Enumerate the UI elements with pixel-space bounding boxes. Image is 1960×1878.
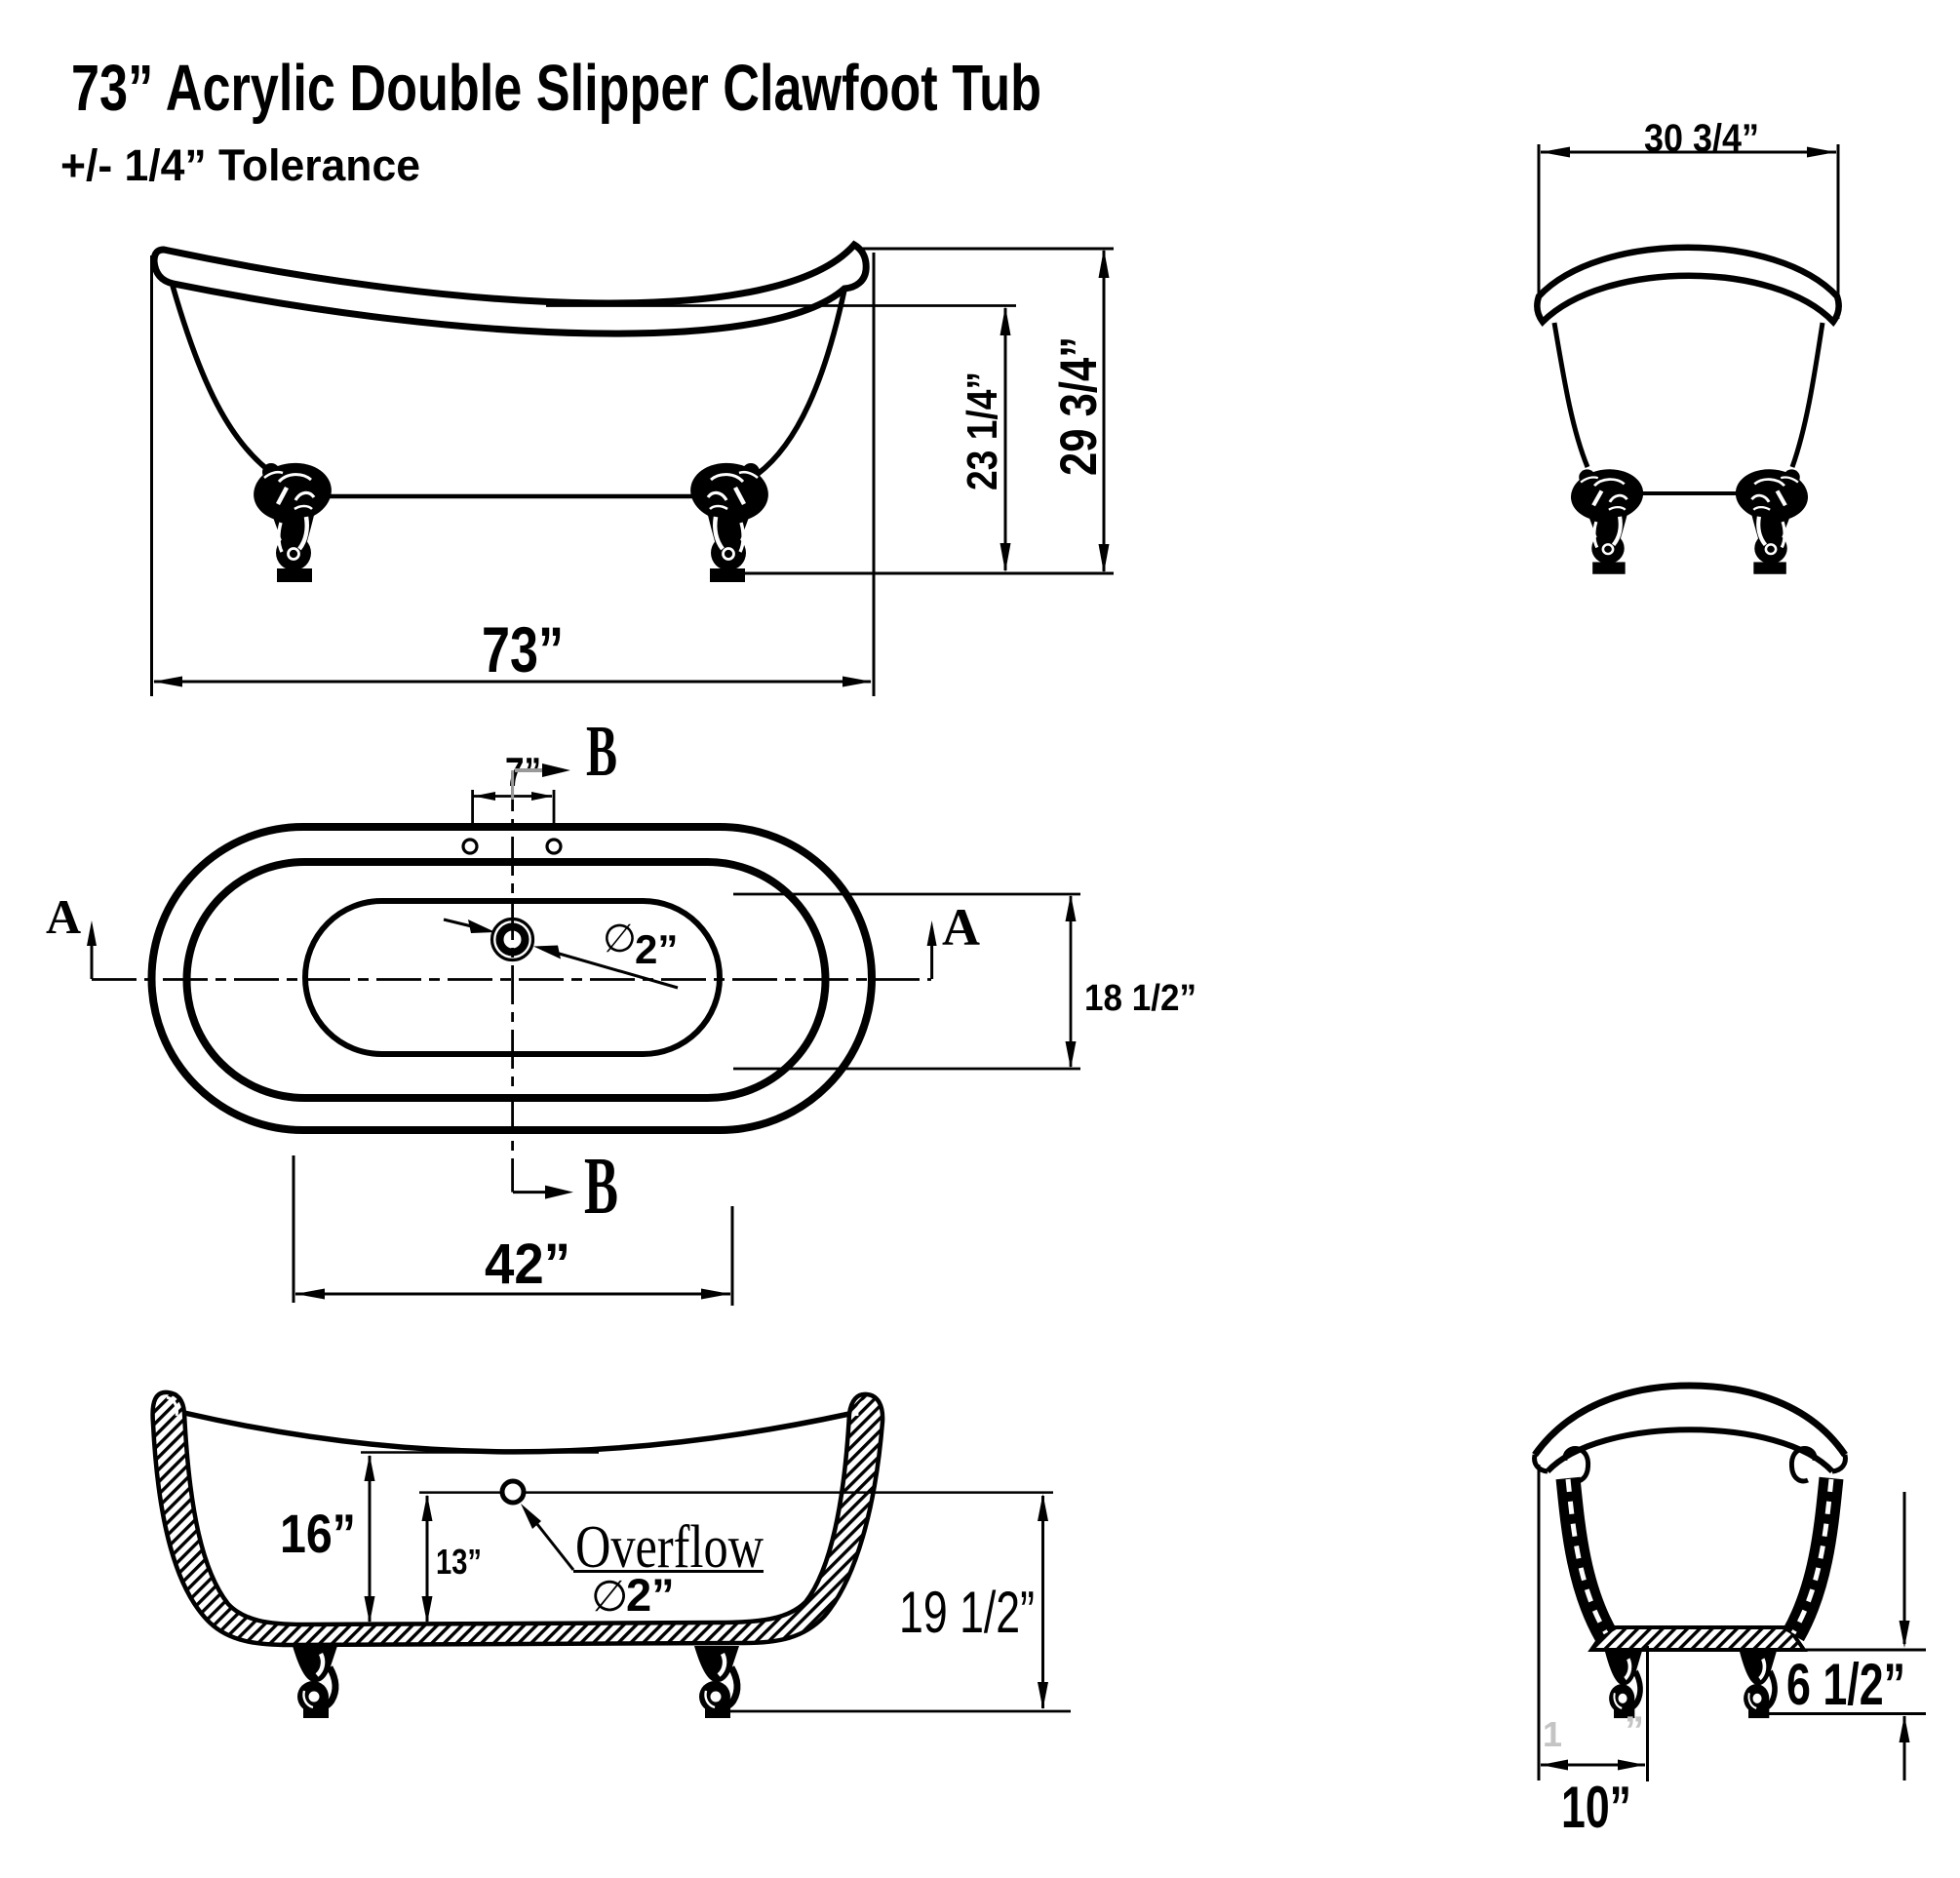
svg-text:2”: 2” [626, 1569, 675, 1621]
svg-text:73” Acrylic Double Slipper Cla: 73” Acrylic Double Slipper Clawfoot Tub [71, 52, 1041, 125]
svg-text:6 1/2”: 6 1/2” [1786, 1652, 1905, 1717]
svg-text:”: ” [1625, 1709, 1644, 1752]
svg-text:19 1/2”: 19 1/2” [899, 1580, 1035, 1645]
svg-text:B: B [584, 1141, 618, 1232]
svg-text:23 1/4”: 23 1/4” [959, 372, 1006, 490]
svg-text:B: B [586, 712, 617, 792]
svg-text:2”: 2” [635, 926, 678, 972]
svg-text:13”: 13” [436, 1542, 482, 1582]
svg-text:18 1/2”: 18 1/2” [1084, 978, 1196, 1019]
svg-text:30 3/4”: 30 3/4” [1644, 117, 1759, 160]
svg-text:+/- 1/4” Tolerance: +/- 1/4” Tolerance [60, 140, 420, 190]
svg-text:73”: 73” [482, 613, 564, 685]
svg-text:∅: ∅ [603, 918, 637, 960]
svg-text:16”: 16” [280, 1503, 356, 1564]
svg-text:10”: 10” [1561, 1775, 1631, 1840]
svg-text:29 3/4”: 29 3/4” [1050, 336, 1108, 476]
svg-text:1: 1 [1543, 1714, 1562, 1754]
svg-text:42”: 42” [485, 1232, 570, 1296]
svg-text:A: A [942, 898, 980, 957]
svg-text:A: A [46, 889, 81, 944]
svg-text:∅: ∅ [591, 1573, 628, 1621]
